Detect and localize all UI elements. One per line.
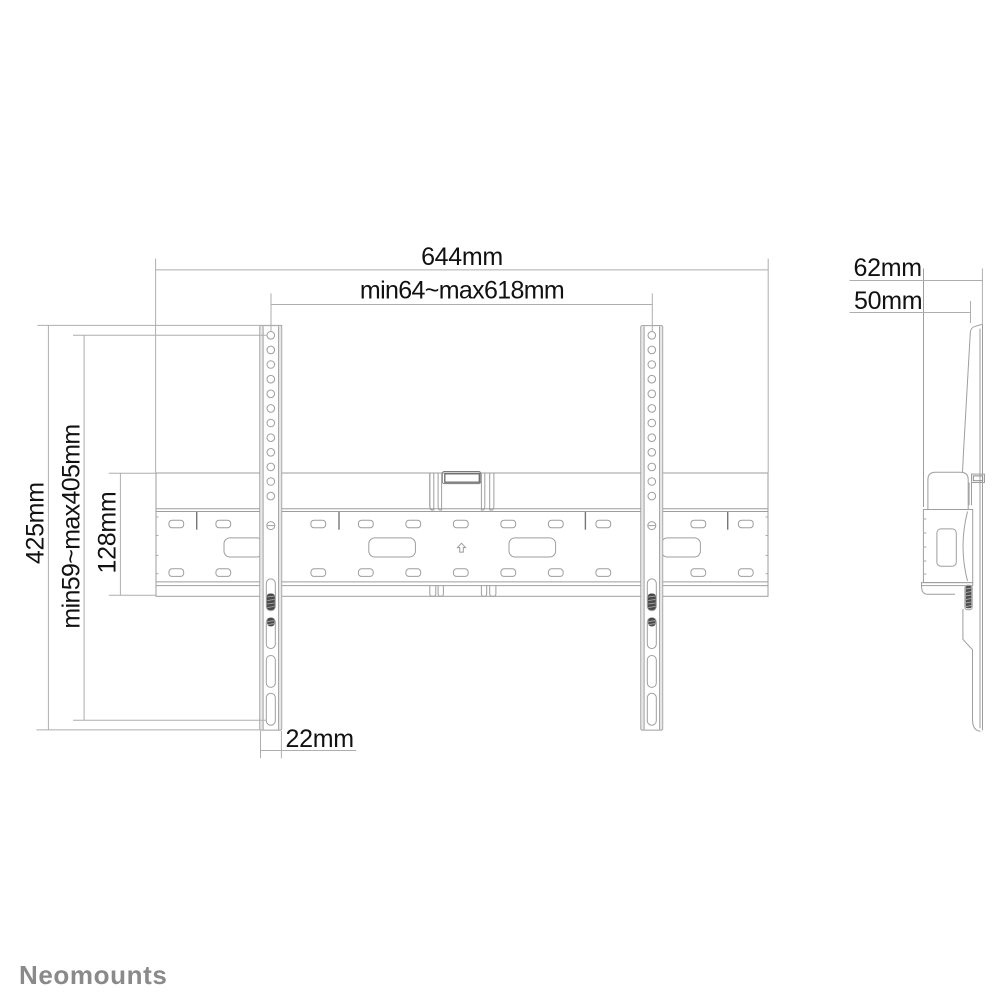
svg-text:50mm: 50mm — [854, 287, 922, 315]
svg-text:min59~max405mm: min59~max405mm — [57, 424, 85, 628]
svg-text:128mm: 128mm — [94, 492, 122, 574]
svg-text:min64~max618mm: min64~max618mm — [360, 277, 564, 305]
svg-text:Neomounts: Neomounts — [19, 960, 167, 990]
svg-text:62mm: 62mm — [854, 254, 922, 282]
svg-text:22mm: 22mm — [286, 725, 354, 753]
svg-text:425mm: 425mm — [22, 482, 50, 564]
svg-text:644mm: 644mm — [421, 243, 503, 271]
